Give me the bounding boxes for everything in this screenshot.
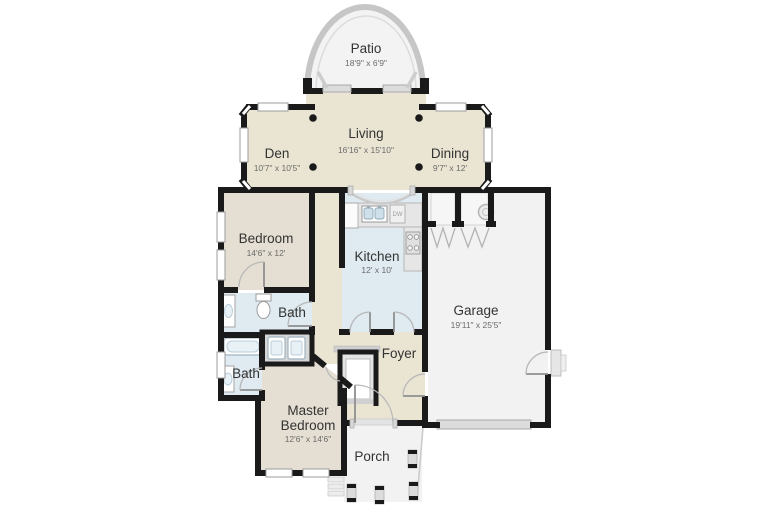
dining-dims: 9'7" x 12'	[433, 163, 468, 173]
dryer-inner	[291, 341, 302, 355]
dining-label: Dining	[431, 146, 469, 161]
dishwasher-label: DW	[393, 212, 403, 218]
living-label: Living	[348, 126, 383, 141]
burner-4	[414, 246, 419, 251]
bathtub-inner	[227, 341, 259, 352]
porch-pillar-2	[375, 486, 384, 504]
column-1	[309, 114, 317, 122]
porch-pillar-4	[408, 450, 417, 468]
porch-step-3	[328, 491, 344, 496]
dining-top-window	[436, 103, 466, 111]
sink-basin-left	[364, 208, 373, 219]
porch-label: Porch	[354, 449, 389, 464]
column-4	[415, 163, 423, 171]
faucet-right	[378, 206, 381, 209]
kitchen-dims: 12' x 10'	[361, 265, 393, 275]
foyer-closet-rod	[343, 399, 373, 404]
column-3	[415, 114, 423, 122]
patio-dims: 18'9" x 6'9"	[345, 58, 387, 68]
toilet-bowl	[257, 302, 270, 319]
bedroom-window-1	[217, 212, 225, 242]
bedroom-dims: 14'6" x 12'	[247, 248, 286, 258]
toilet-tank	[256, 294, 271, 301]
living-dims: 16'16" x 15'10"	[338, 145, 394, 155]
washer-inner	[271, 341, 282, 355]
den-dims: 10'7" x 10'5"	[254, 163, 301, 173]
master-dims: 12'6" x 14'6"	[285, 434, 332, 444]
bath2-window	[217, 352, 225, 378]
den-top-window	[258, 103, 288, 111]
patio-corner-right	[420, 78, 429, 91]
porch-pillar-3	[409, 482, 418, 500]
front-door-threshold	[353, 419, 394, 425]
den-left-window	[240, 128, 248, 162]
bath2-label: Bath	[232, 366, 260, 381]
den-label: Den	[265, 146, 290, 161]
casing-4	[393, 419, 397, 428]
casing-1	[348, 186, 353, 195]
burner-1	[408, 235, 413, 240]
master-window-2	[303, 469, 329, 477]
patio-corner-left	[303, 78, 312, 91]
column-2	[309, 163, 317, 171]
foyer-closet-shelf	[346, 359, 370, 399]
casing-3	[350, 419, 354, 428]
foyer-label: Foyer	[382, 346, 417, 361]
garage-label: Garage	[453, 303, 498, 318]
bedroom-label: Bedroom	[239, 231, 294, 246]
bedroom-window-2	[217, 250, 225, 280]
bath1-label: Bath	[278, 305, 306, 320]
master-window-1	[266, 469, 292, 477]
garage-door	[437, 420, 531, 429]
kitchen-label: Kitchen	[354, 249, 399, 264]
hall-floor	[312, 193, 342, 364]
casing-2	[410, 186, 415, 195]
master-label-line2: Bedroom	[281, 418, 336, 433]
garage-closet-1	[431, 193, 455, 225]
patio-label: Patio	[351, 41, 382, 56]
dining-right-window	[484, 128, 492, 162]
porch-step-1	[328, 477, 344, 482]
refrigerator	[344, 203, 358, 228]
floor-plan-page: DW	[0, 0, 768, 530]
burner-2	[414, 235, 419, 240]
faucet-left	[367, 206, 370, 209]
garage-side-step	[551, 350, 561, 376]
master-label-line1: Master	[287, 403, 329, 418]
porch-step-2	[328, 484, 344, 489]
sink-basin-right	[375, 208, 384, 219]
burner-3	[408, 246, 413, 251]
bath1-sink	[225, 305, 233, 318]
porch-pillar-1	[347, 484, 356, 502]
floor-plan: DW	[0, 0, 768, 530]
garage-dims: 19'11" x 25'5"	[451, 320, 502, 330]
garage-side-step-2	[561, 355, 566, 371]
